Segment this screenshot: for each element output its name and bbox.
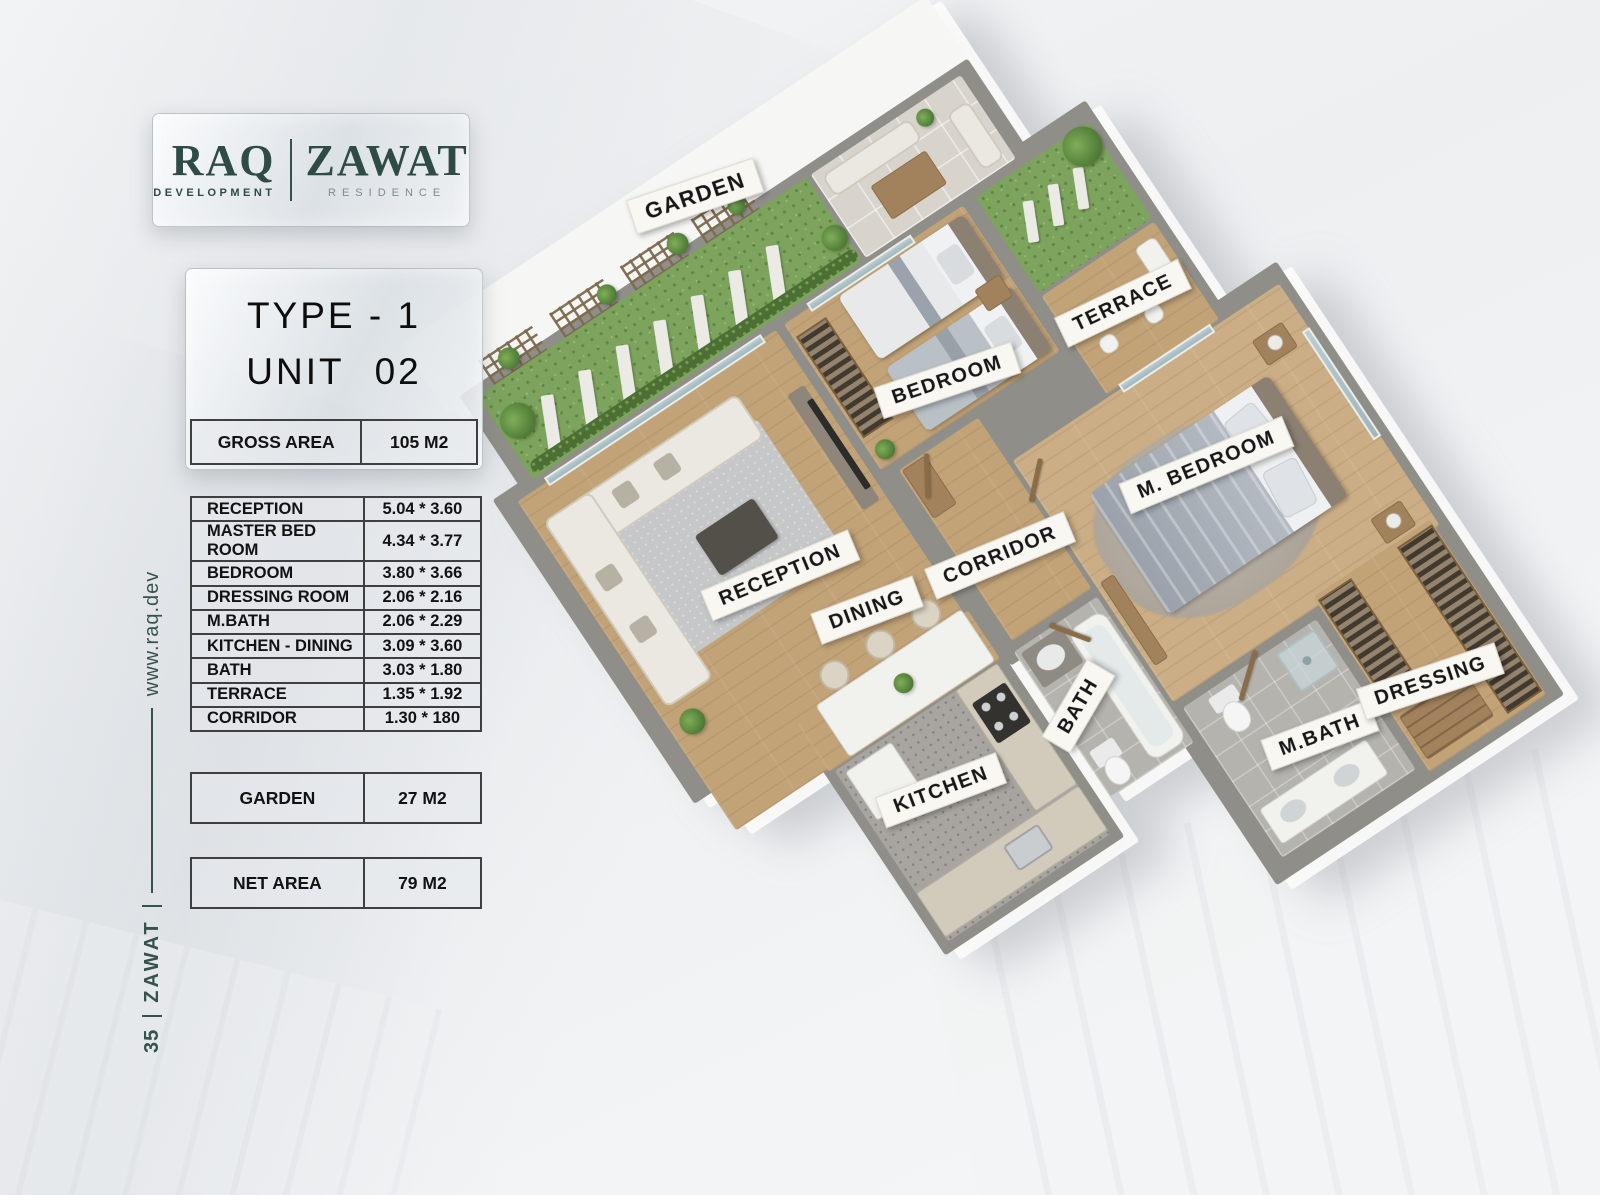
room-name: BEDROOM [192, 562, 365, 584]
room-size: 3.09 * 3.60 [365, 635, 480, 657]
table-row: BEDROOM 3.80 * 3.66 [192, 562, 480, 586]
garden-area-value: 27 M2 [365, 774, 480, 822]
room-size: 2.06 * 2.16 [365, 587, 480, 609]
table-row: TERRACE 1.35 * 1.92 [192, 684, 480, 708]
brand-sub-development: DEVELOPMENT [153, 187, 275, 199]
table-row: CORRIDOR 1.30 * 180 [192, 708, 480, 730]
garden-area-label: GARDEN [192, 774, 365, 822]
room-name: M.BATH [192, 611, 365, 633]
room-size: 1.35 * 1.92 [365, 684, 480, 706]
brand-name-raq: RAQ [153, 141, 275, 181]
unit-number: 02 [375, 351, 422, 393]
logo-divider [290, 139, 292, 201]
brand-left: RAQ DEVELOPMENT [153, 141, 275, 199]
brand-logo-plaque: RAQ DEVELOPMENT ZAWAT RESIDENCE [152, 113, 470, 227]
room-size: 2.06 * 2.29 [365, 611, 480, 633]
net-area-label: NET AREA [192, 859, 365, 907]
side-divider [142, 905, 162, 907]
room-name: DRESSING ROOM [192, 587, 365, 609]
table-row: DRESSING ROOM 2.06 * 2.16 [192, 587, 480, 611]
gross-area-row: GROSS AREA 105 M2 [190, 419, 478, 465]
brand-right: ZAWAT RESIDENCE [306, 141, 469, 199]
room-size: 1.30 * 180 [365, 708, 480, 730]
unit-number-row: UNIT 02 [246, 351, 421, 393]
side-rule-line [151, 708, 153, 893]
room-name: MASTER BED ROOM [192, 522, 365, 560]
unit-spec-panel: TYPE - 1 UNIT 02 GROSS AREA 105 M2 [185, 268, 483, 470]
room-name: RECEPTION [192, 498, 365, 520]
poster-canvas: GARDEN TERRACE BEDROOM M. BEDROOM RECEPT… [0, 0, 1600, 1195]
unit-type: TYPE - 1 [247, 295, 421, 337]
room-name: CORRIDOR [192, 708, 365, 730]
table-row: MASTER BED ROOM 4.34 * 3.77 [192, 522, 480, 562]
unit-label: UNIT [246, 351, 344, 393]
room-size: 4.34 * 3.77 [365, 522, 480, 560]
brand-name-zawat: ZAWAT [306, 141, 469, 181]
table-row: BATH 3.03 * 1.80 [192, 659, 480, 683]
project-name: ZAWAT [141, 919, 164, 1003]
room-dimensions-table: RECEPTION 5.04 * 3.60 MASTER BED ROOM 4.… [190, 496, 482, 732]
website-url: www.raq.dev [141, 571, 164, 697]
background-shape [0, 897, 454, 1195]
brand-sub-residence: RESIDENCE [306, 187, 469, 199]
garden-area-row: GARDEN 27 M2 [190, 772, 482, 824]
gross-area-value: 105 M2 [362, 421, 476, 463]
room-name: KITCHEN - DINING [192, 635, 365, 657]
net-area-value: 79 M2 [365, 859, 480, 907]
room-size: 3.80 * 3.66 [365, 562, 480, 584]
page-number: 35 [141, 1029, 164, 1053]
table-row: RECEPTION 5.04 * 3.60 [192, 498, 480, 522]
net-area-row: NET AREA 79 M2 [190, 857, 482, 909]
room-name: TERRACE [192, 684, 365, 706]
room-name: BATH [192, 659, 365, 681]
room-size: 5.04 * 3.60 [365, 498, 480, 520]
gross-area-label: GROSS AREA [192, 421, 362, 463]
table-row: KITCHEN - DINING 3.09 * 3.60 [192, 635, 480, 659]
table-row: M.BATH 2.06 * 2.29 [192, 611, 480, 635]
floor-plan: GARDEN TERRACE BEDROOM M. BEDROOM RECEPT… [397, 0, 1567, 1141]
room-size: 3.03 * 1.80 [365, 659, 480, 681]
side-divider [142, 1015, 162, 1017]
